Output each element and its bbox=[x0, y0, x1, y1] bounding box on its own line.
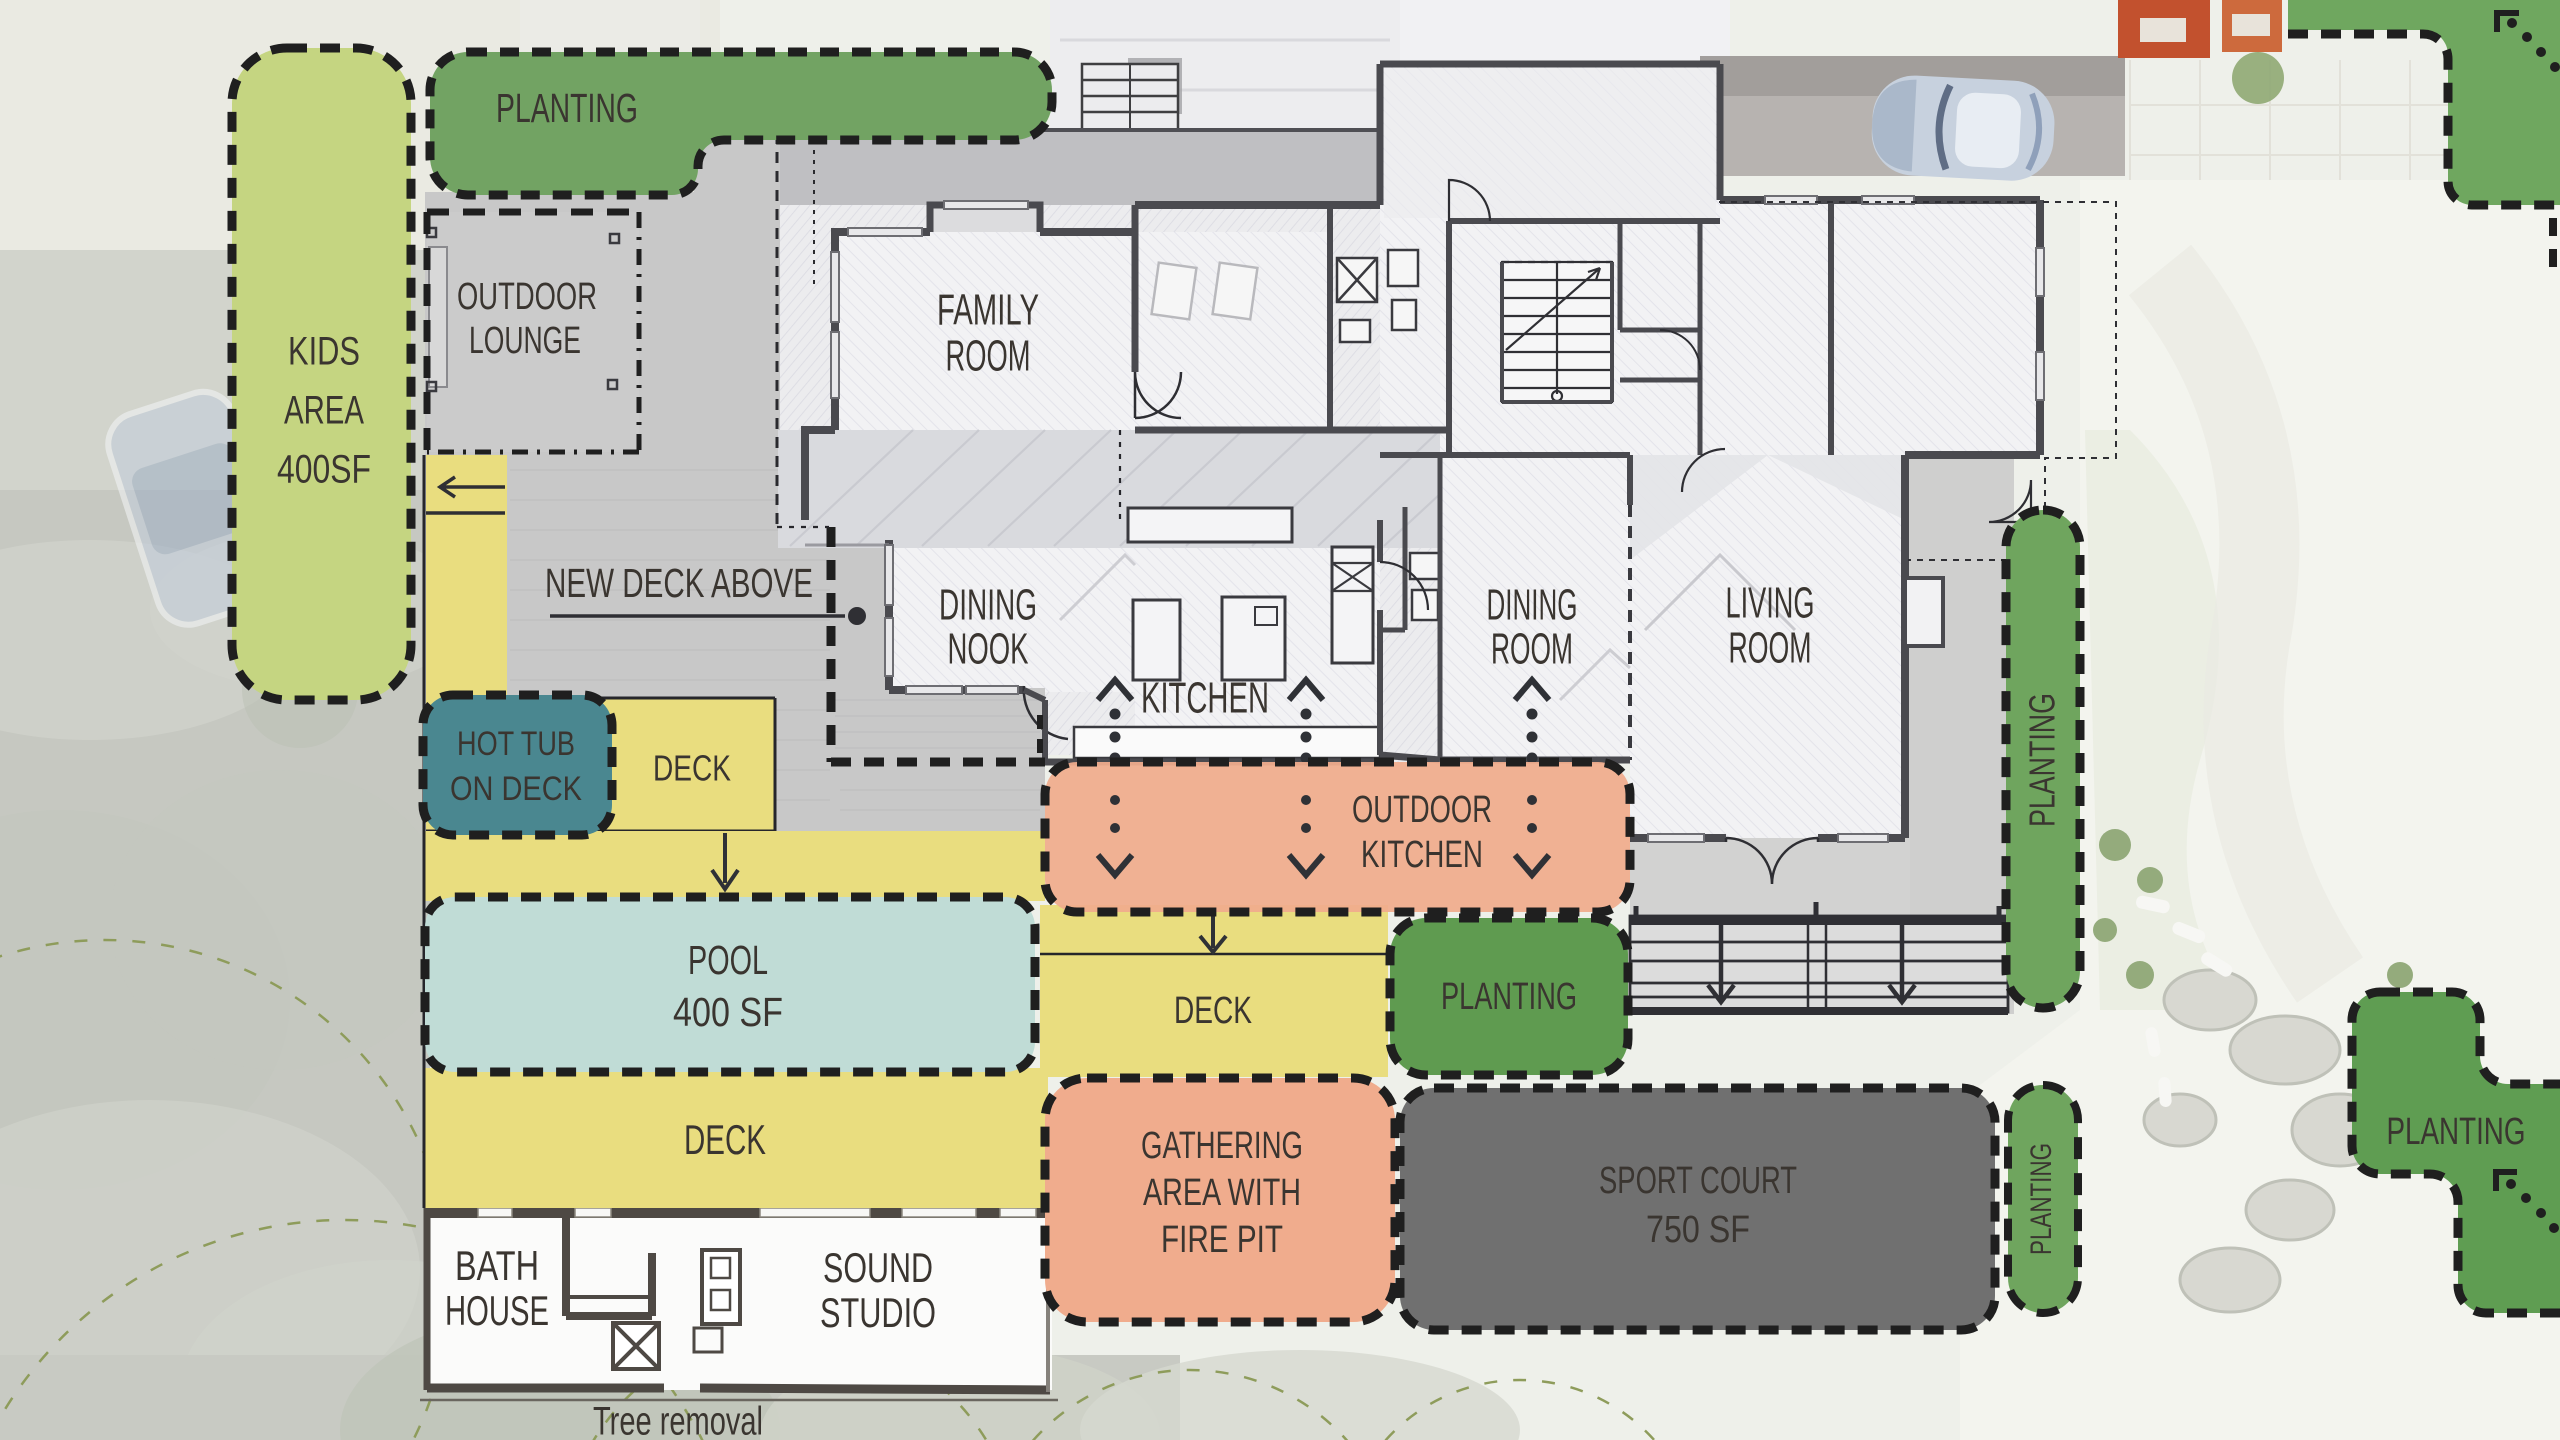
svg-text:DECK: DECK bbox=[684, 1116, 766, 1163]
svg-text:ROOM: ROOM bbox=[946, 332, 1031, 381]
svg-text:GATHERING: GATHERING bbox=[1141, 1125, 1303, 1167]
svg-text:BATH: BATH bbox=[455, 1242, 539, 1289]
svg-text:ON DECK: ON DECK bbox=[450, 770, 582, 808]
svg-text:PLANTING: PLANTING bbox=[2022, 693, 2063, 827]
svg-text:400 SF: 400 SF bbox=[673, 989, 783, 1035]
svg-text:PLANTING: PLANTING bbox=[2387, 1111, 2526, 1153]
svg-text:OUTDOOR: OUTDOOR bbox=[457, 276, 597, 318]
svg-text:KIDS: KIDS bbox=[288, 330, 360, 374]
svg-text:DECK: DECK bbox=[653, 748, 731, 789]
svg-text:HOUSE: HOUSE bbox=[445, 1287, 549, 1334]
svg-text:750 SF: 750 SF bbox=[1646, 1209, 1750, 1251]
svg-text:OUTDOOR: OUTDOOR bbox=[1352, 789, 1492, 831]
svg-text:NOOK: NOOK bbox=[948, 625, 1029, 674]
svg-text:DINING: DINING bbox=[1487, 581, 1578, 630]
svg-text:SPORT COURT: SPORT COURT bbox=[1599, 1160, 1797, 1202]
svg-text:ROOM: ROOM bbox=[1729, 624, 1812, 673]
svg-text:LIVING: LIVING bbox=[1726, 579, 1815, 628]
svg-text:KITCHEN: KITCHEN bbox=[1361, 834, 1483, 876]
svg-text:FIRE PIT: FIRE PIT bbox=[1161, 1219, 1283, 1261]
svg-text:STUDIO: STUDIO bbox=[820, 1289, 936, 1336]
svg-text:AREA: AREA bbox=[284, 389, 364, 433]
svg-text:POOL: POOL bbox=[688, 937, 768, 983]
svg-text:PLANTING: PLANTING bbox=[1441, 976, 1577, 1018]
svg-text:Tree removal: Tree removal bbox=[593, 1400, 763, 1440]
svg-text:PLANTING: PLANTING bbox=[496, 85, 638, 131]
svg-text:DECK: DECK bbox=[1174, 990, 1252, 1032]
svg-text:SOUND: SOUND bbox=[823, 1244, 933, 1291]
svg-text:KITCHEN: KITCHEN bbox=[1141, 674, 1269, 723]
svg-text:NEW DECK ABOVE: NEW DECK ABOVE bbox=[545, 560, 813, 606]
svg-text:HOT TUB: HOT TUB bbox=[457, 725, 575, 763]
svg-text:ROOM: ROOM bbox=[1491, 625, 1573, 674]
svg-text:400SF: 400SF bbox=[277, 448, 371, 492]
svg-text:AREA WITH: AREA WITH bbox=[1143, 1172, 1301, 1214]
svg-text:LOUNGE: LOUNGE bbox=[469, 320, 581, 362]
svg-text:DINING: DINING bbox=[939, 581, 1037, 630]
svg-text:PLANTING: PLANTING bbox=[2025, 1143, 2058, 1255]
svg-text:FAMILY: FAMILY bbox=[937, 286, 1039, 335]
